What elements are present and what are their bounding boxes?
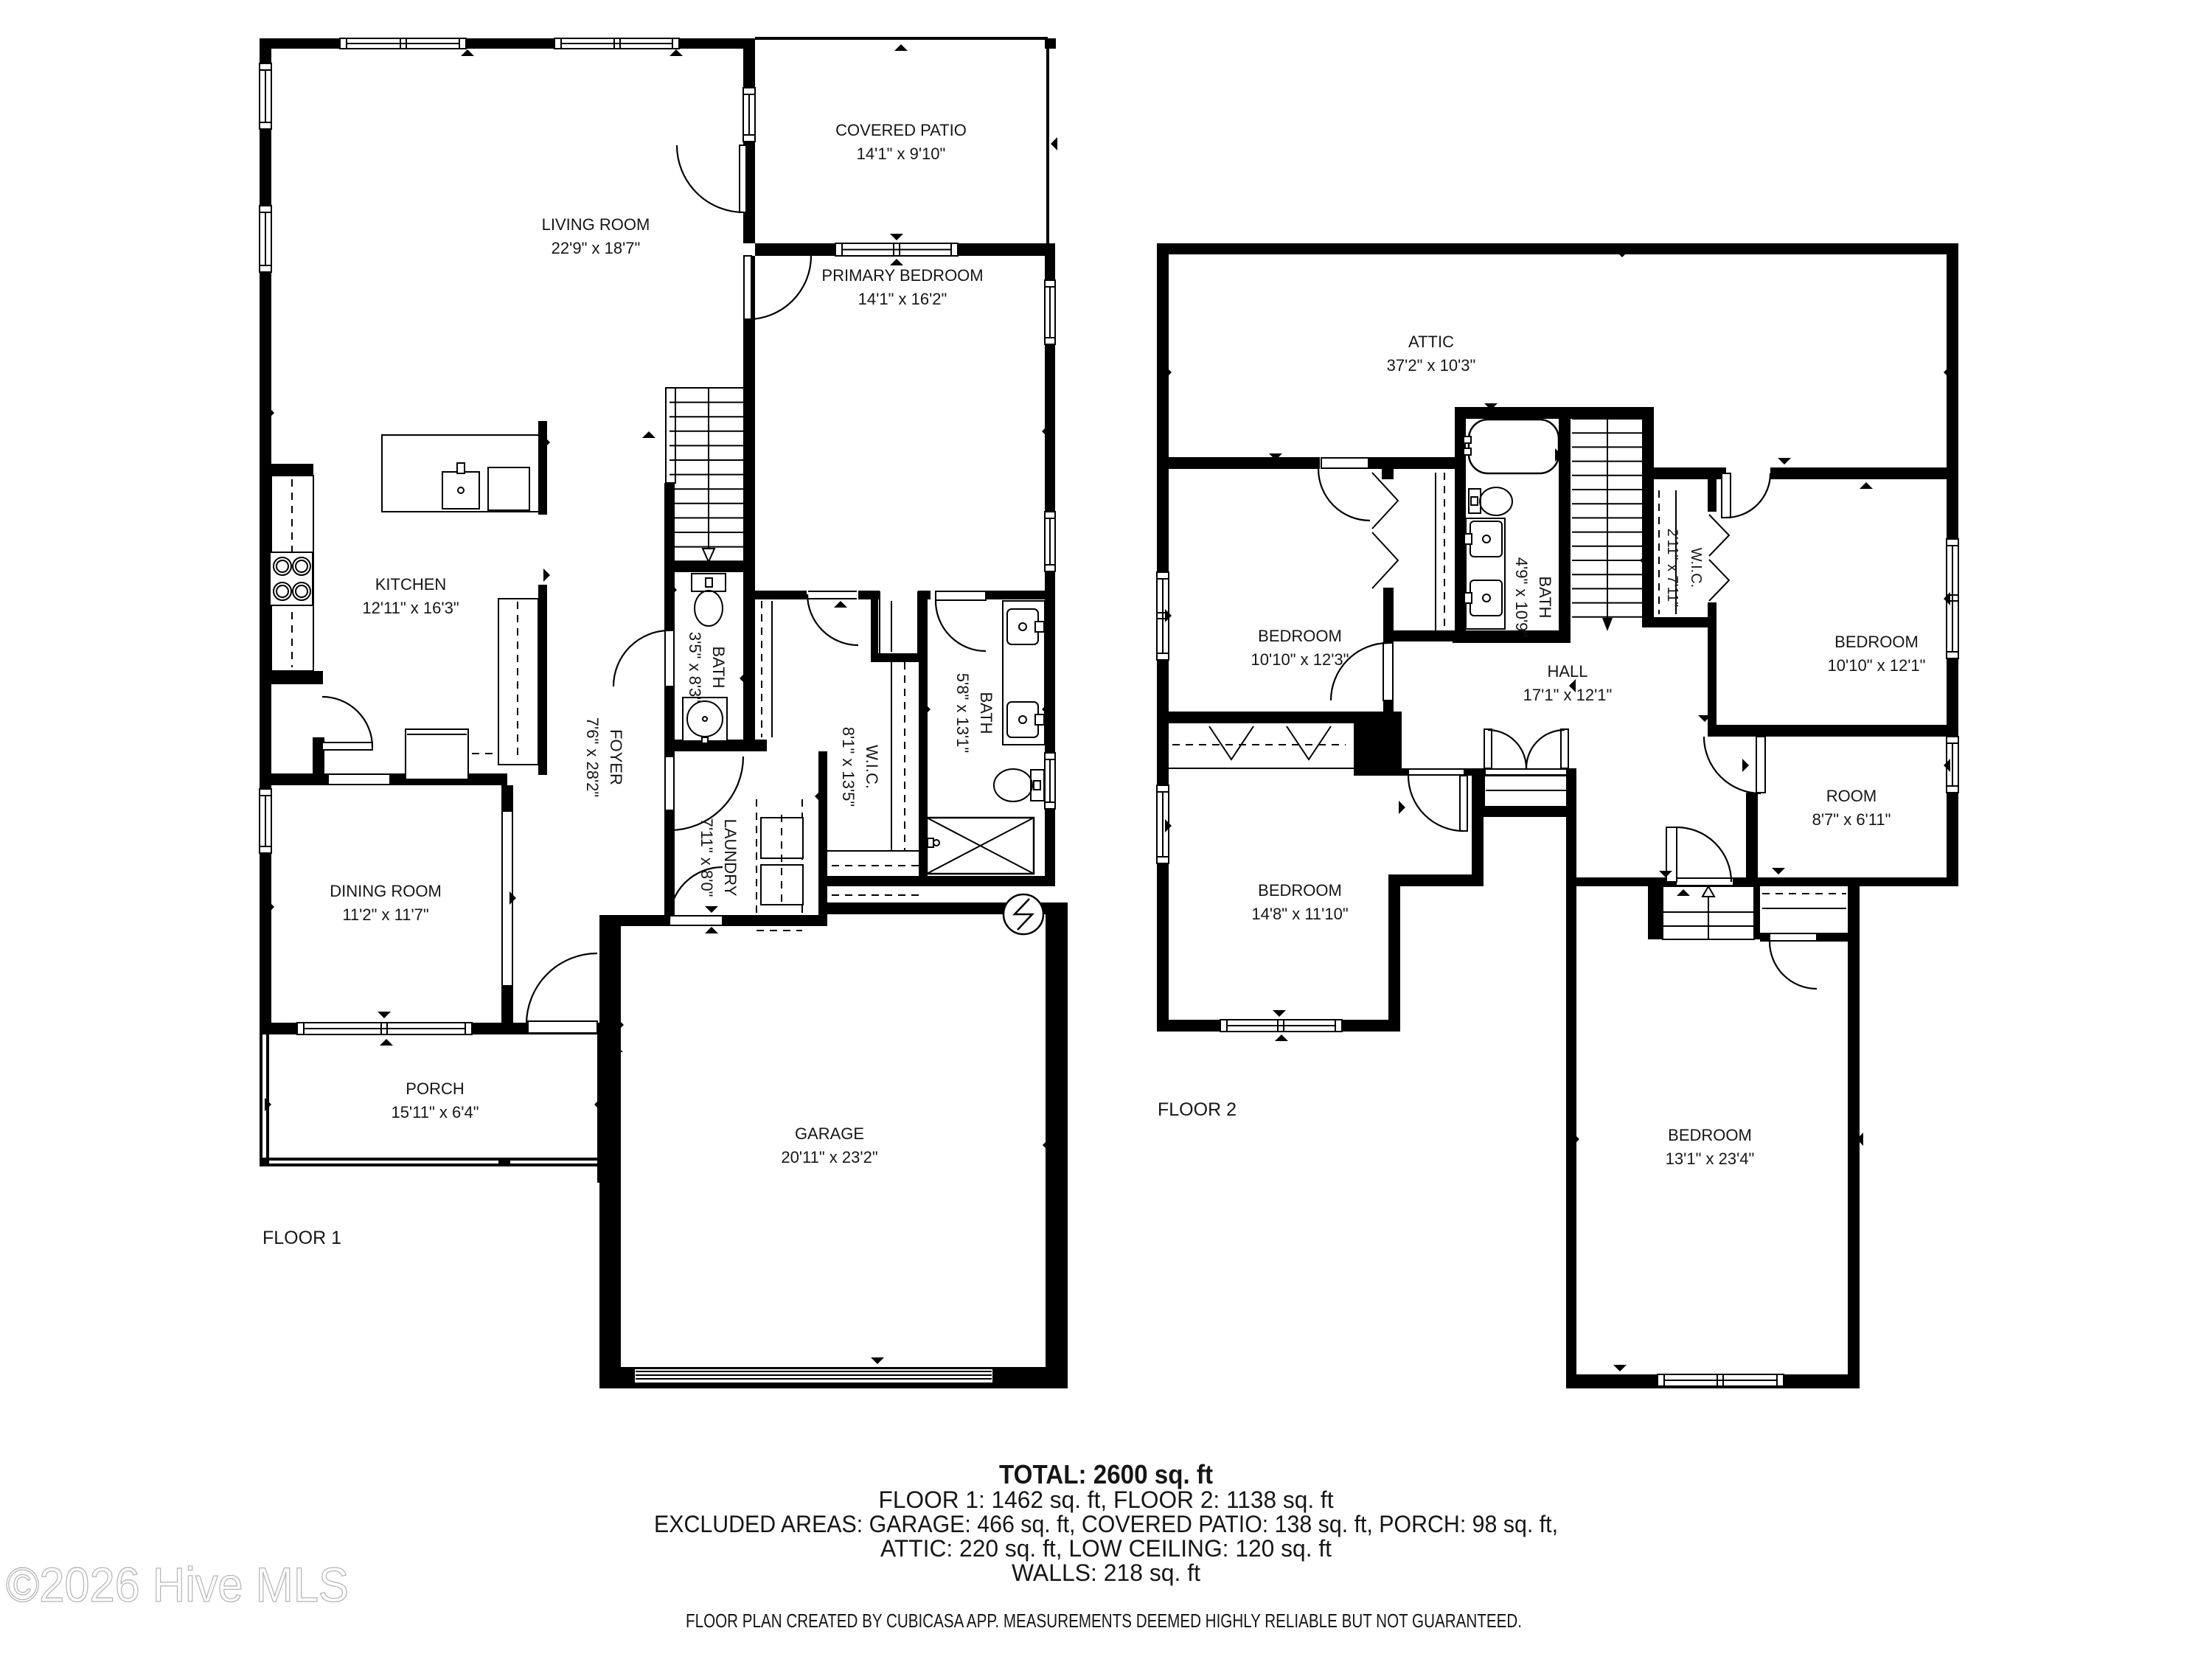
svg-text:11'2" x 11'7": 11'2" x 11'7" <box>342 905 428 924</box>
svg-text:14'8" x 11'10": 14'8" x 11'10" <box>1251 905 1348 923</box>
svg-text:14'1" x 9'10": 14'1" x 9'10" <box>857 145 946 163</box>
svg-text:ATTIC: ATTIC <box>1408 333 1454 351</box>
svg-text:5'8" x 13'1": 5'8" x 13'1" <box>953 673 972 753</box>
svg-text:3'5" x 8'3": 3'5" x 8'3" <box>686 632 704 703</box>
svg-text:PRIMARY BEDROOM: PRIMARY BEDROOM <box>821 266 983 285</box>
svg-text:EXCLUDED AREAS: GARAGE: 466 sq: EXCLUDED AREAS: GARAGE: 466 sq. ft, COVE… <box>654 1511 1558 1537</box>
svg-text:FLOOR 1: FLOOR 1 <box>262 1228 341 1248</box>
svg-text:13'1" x 23'4": 13'1" x 23'4" <box>1666 1150 1755 1168</box>
svg-text:PORCH: PORCH <box>406 1079 464 1098</box>
svg-text:BATH: BATH <box>709 646 728 688</box>
svg-text:12'11" x 16'3": 12'11" x 16'3" <box>362 599 459 617</box>
svg-text:LIVING ROOM: LIVING ROOM <box>542 215 650 234</box>
svg-text:22'9" x 18'7": 22'9" x 18'7" <box>552 239 641 257</box>
svg-text:FLOOR 1: 1462 sq. ft, FLOOR 2:: FLOOR 1: 1462 sq. ft, FLOOR 2: 1138 sq. … <box>879 1486 1334 1513</box>
svg-text:2'11" x 7'11": 2'11" x 7'11" <box>1664 529 1680 608</box>
svg-text:10'10" x 12'1": 10'10" x 12'1" <box>1828 656 1926 675</box>
svg-text:BEDROOM: BEDROOM <box>1258 881 1342 900</box>
svg-text:8'1" x 13'5": 8'1" x 13'5" <box>839 727 858 807</box>
svg-text:DINING ROOM: DINING ROOM <box>330 882 442 900</box>
svg-text:37'2" x 10'3": 37'2" x 10'3" <box>1387 356 1476 375</box>
svg-text:KITCHEN: KITCHEN <box>375 575 447 594</box>
svg-text:TOTAL: 2600 sq. ft: TOTAL: 2600 sq. ft <box>999 1459 1213 1489</box>
svg-text:GARAGE: GARAGE <box>795 1124 864 1143</box>
svg-text:FLOOR 2: FLOOR 2 <box>1158 1099 1237 1120</box>
svg-text:15'11" x 6'4": 15'11" x 6'4" <box>391 1103 479 1121</box>
svg-text:©2026 Hive MLS: ©2026 Hive MLS <box>6 1557 349 1612</box>
svg-text:W.I.C.: W.I.C. <box>863 745 881 789</box>
svg-text:BEDROOM: BEDROOM <box>1258 627 1342 645</box>
svg-text:BATH: BATH <box>1536 576 1554 618</box>
svg-text:14'1" x 16'2": 14'1" x 16'2" <box>858 290 947 308</box>
svg-text:10'10" x 12'3": 10'10" x 12'3" <box>1251 650 1349 669</box>
svg-text:HALL: HALL <box>1547 662 1587 681</box>
svg-text:FOYER: FOYER <box>607 729 625 785</box>
svg-text:COVERED PATIO: COVERED PATIO <box>835 121 967 139</box>
svg-text:7'6" x 28'2": 7'6" x 28'2" <box>583 717 602 797</box>
svg-text:ATTIC: 220 sq. ft, LOW CEILING: ATTIC: 220 sq. ft, LOW CEILING: 120 sq. … <box>880 1535 1332 1562</box>
svg-text:8'7" x 6'11": 8'7" x 6'11" <box>1812 810 1891 829</box>
svg-text:LAUNDRY: LAUNDRY <box>721 819 740 897</box>
svg-text:W.I.C.: W.I.C. <box>1688 548 1704 588</box>
svg-text:4'9" x 10'9": 4'9" x 10'9" <box>1512 557 1531 637</box>
svg-text:20'11" x 23'2": 20'11" x 23'2" <box>781 1148 877 1166</box>
svg-text:FLOOR PLAN CREATED BY CUBICASA: FLOOR PLAN CREATED BY CUBICASA APP. MEAS… <box>686 1610 1522 1632</box>
svg-text:BEDROOM: BEDROOM <box>1668 1126 1752 1144</box>
svg-text:ROOM: ROOM <box>1826 787 1877 805</box>
svg-text:WALLS: 218 sq. ft: WALLS: 218 sq. ft <box>1012 1559 1200 1586</box>
svg-text:7'11" x 8'0": 7'11" x 8'0" <box>698 818 716 897</box>
svg-text:BEDROOM: BEDROOM <box>1834 633 1919 651</box>
svg-text:BATH: BATH <box>977 692 995 734</box>
svg-text:17'1" x 12'1": 17'1" x 12'1" <box>1523 686 1613 704</box>
